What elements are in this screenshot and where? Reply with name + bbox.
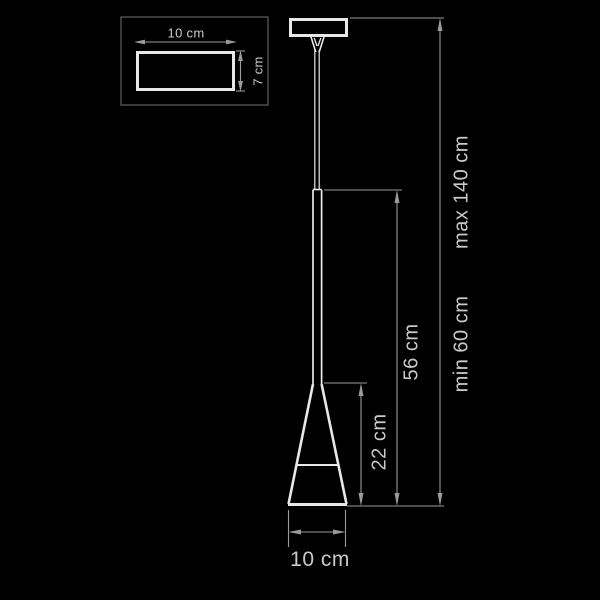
fixture-height-label: 56 cm: [401, 324, 424, 381]
dimension-lines: [289, 18, 445, 547]
dim-arrow-shade-bottom: [359, 493, 364, 506]
canopy-outline: [291, 20, 347, 36]
overall-max-label: max 140 cm: [451, 135, 474, 249]
inset-height-label: 7 cm: [251, 56, 266, 85]
dim-arrow-fixture-bottom: [395, 493, 400, 506]
cone-shade-left: [289, 384, 314, 504]
pendant-lamp-drawing: [288, 20, 347, 505]
inset-width-label: 10 cm: [168, 26, 205, 41]
diagram-linework: [0, 0, 600, 600]
inset-height-arrow-top: [238, 50, 243, 61]
dim-arrow-shade-top: [359, 383, 364, 396]
dim-arrow-overall-top: [438, 18, 443, 31]
overall-min-label: min 60 cm: [451, 296, 474, 393]
dim-arrow-diameter-left: [289, 530, 302, 535]
inset-width-arrow-left: [134, 40, 145, 45]
dim-arrow-diameter-right: [333, 530, 346, 535]
shade-height-label: 22 cm: [369, 414, 392, 471]
shade-diameter-label: 10 cm: [290, 548, 350, 572]
cable-grip-notch-right: [318, 38, 321, 46]
canopy-plan-rect: [138, 53, 234, 90]
dim-arrow-fixture-top: [395, 190, 400, 203]
inset-height-arrow-bottom: [238, 81, 243, 92]
lamp-dimension-diagram: 10 cm 7 cm 22 cm 56 cm min 60 cm max 140…: [0, 0, 600, 600]
cable-grip-notch-left: [314, 38, 317, 46]
dim-arrow-overall-bottom: [438, 493, 443, 506]
inset-width-arrow-right: [226, 40, 237, 45]
cone-shade-right: [322, 384, 347, 504]
